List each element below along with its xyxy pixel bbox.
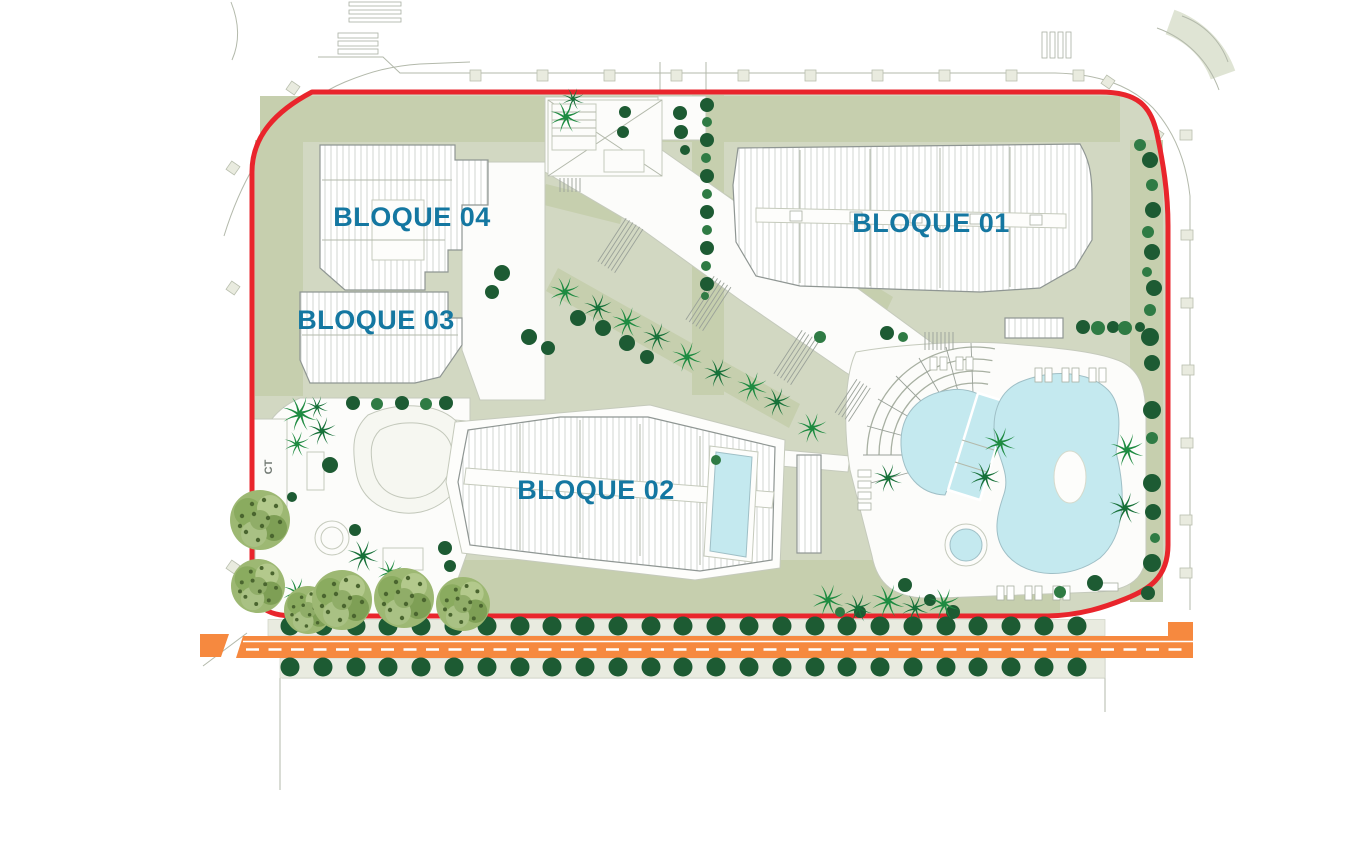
site-plan-canvas: CT — [0, 0, 1360, 850]
pergola-west-small — [307, 452, 324, 490]
rooftop-pool — [710, 452, 752, 557]
pergola-south-small — [383, 548, 423, 570]
bloque-03-label: BLOQUE 03 — [297, 305, 455, 335]
round-pool — [950, 529, 982, 561]
corner-street-arc — [1170, 22, 1223, 75]
road-surface-east-stub — [1168, 622, 1193, 658]
entrance-pavilion — [548, 100, 662, 176]
road-surface — [236, 636, 1193, 658]
pool-island — [1054, 451, 1086, 503]
road-surface-west-stub — [200, 634, 229, 657]
fountain — [315, 521, 349, 555]
bloque-02-label: BLOQUE 02 — [517, 475, 675, 505]
bloque-01-label: BLOQUE 01 — [852, 208, 1010, 238]
site-plan: CT — [0, 0, 1360, 850]
pergola-north-pool — [1005, 318, 1063, 338]
ct-label: CT — [263, 459, 275, 474]
crosswalk-top-left — [338, 2, 401, 54]
crosswalk-top-right — [1042, 32, 1071, 58]
pergola-east — [797, 455, 821, 553]
bloque-04-label: BLOQUE 04 — [333, 202, 491, 232]
